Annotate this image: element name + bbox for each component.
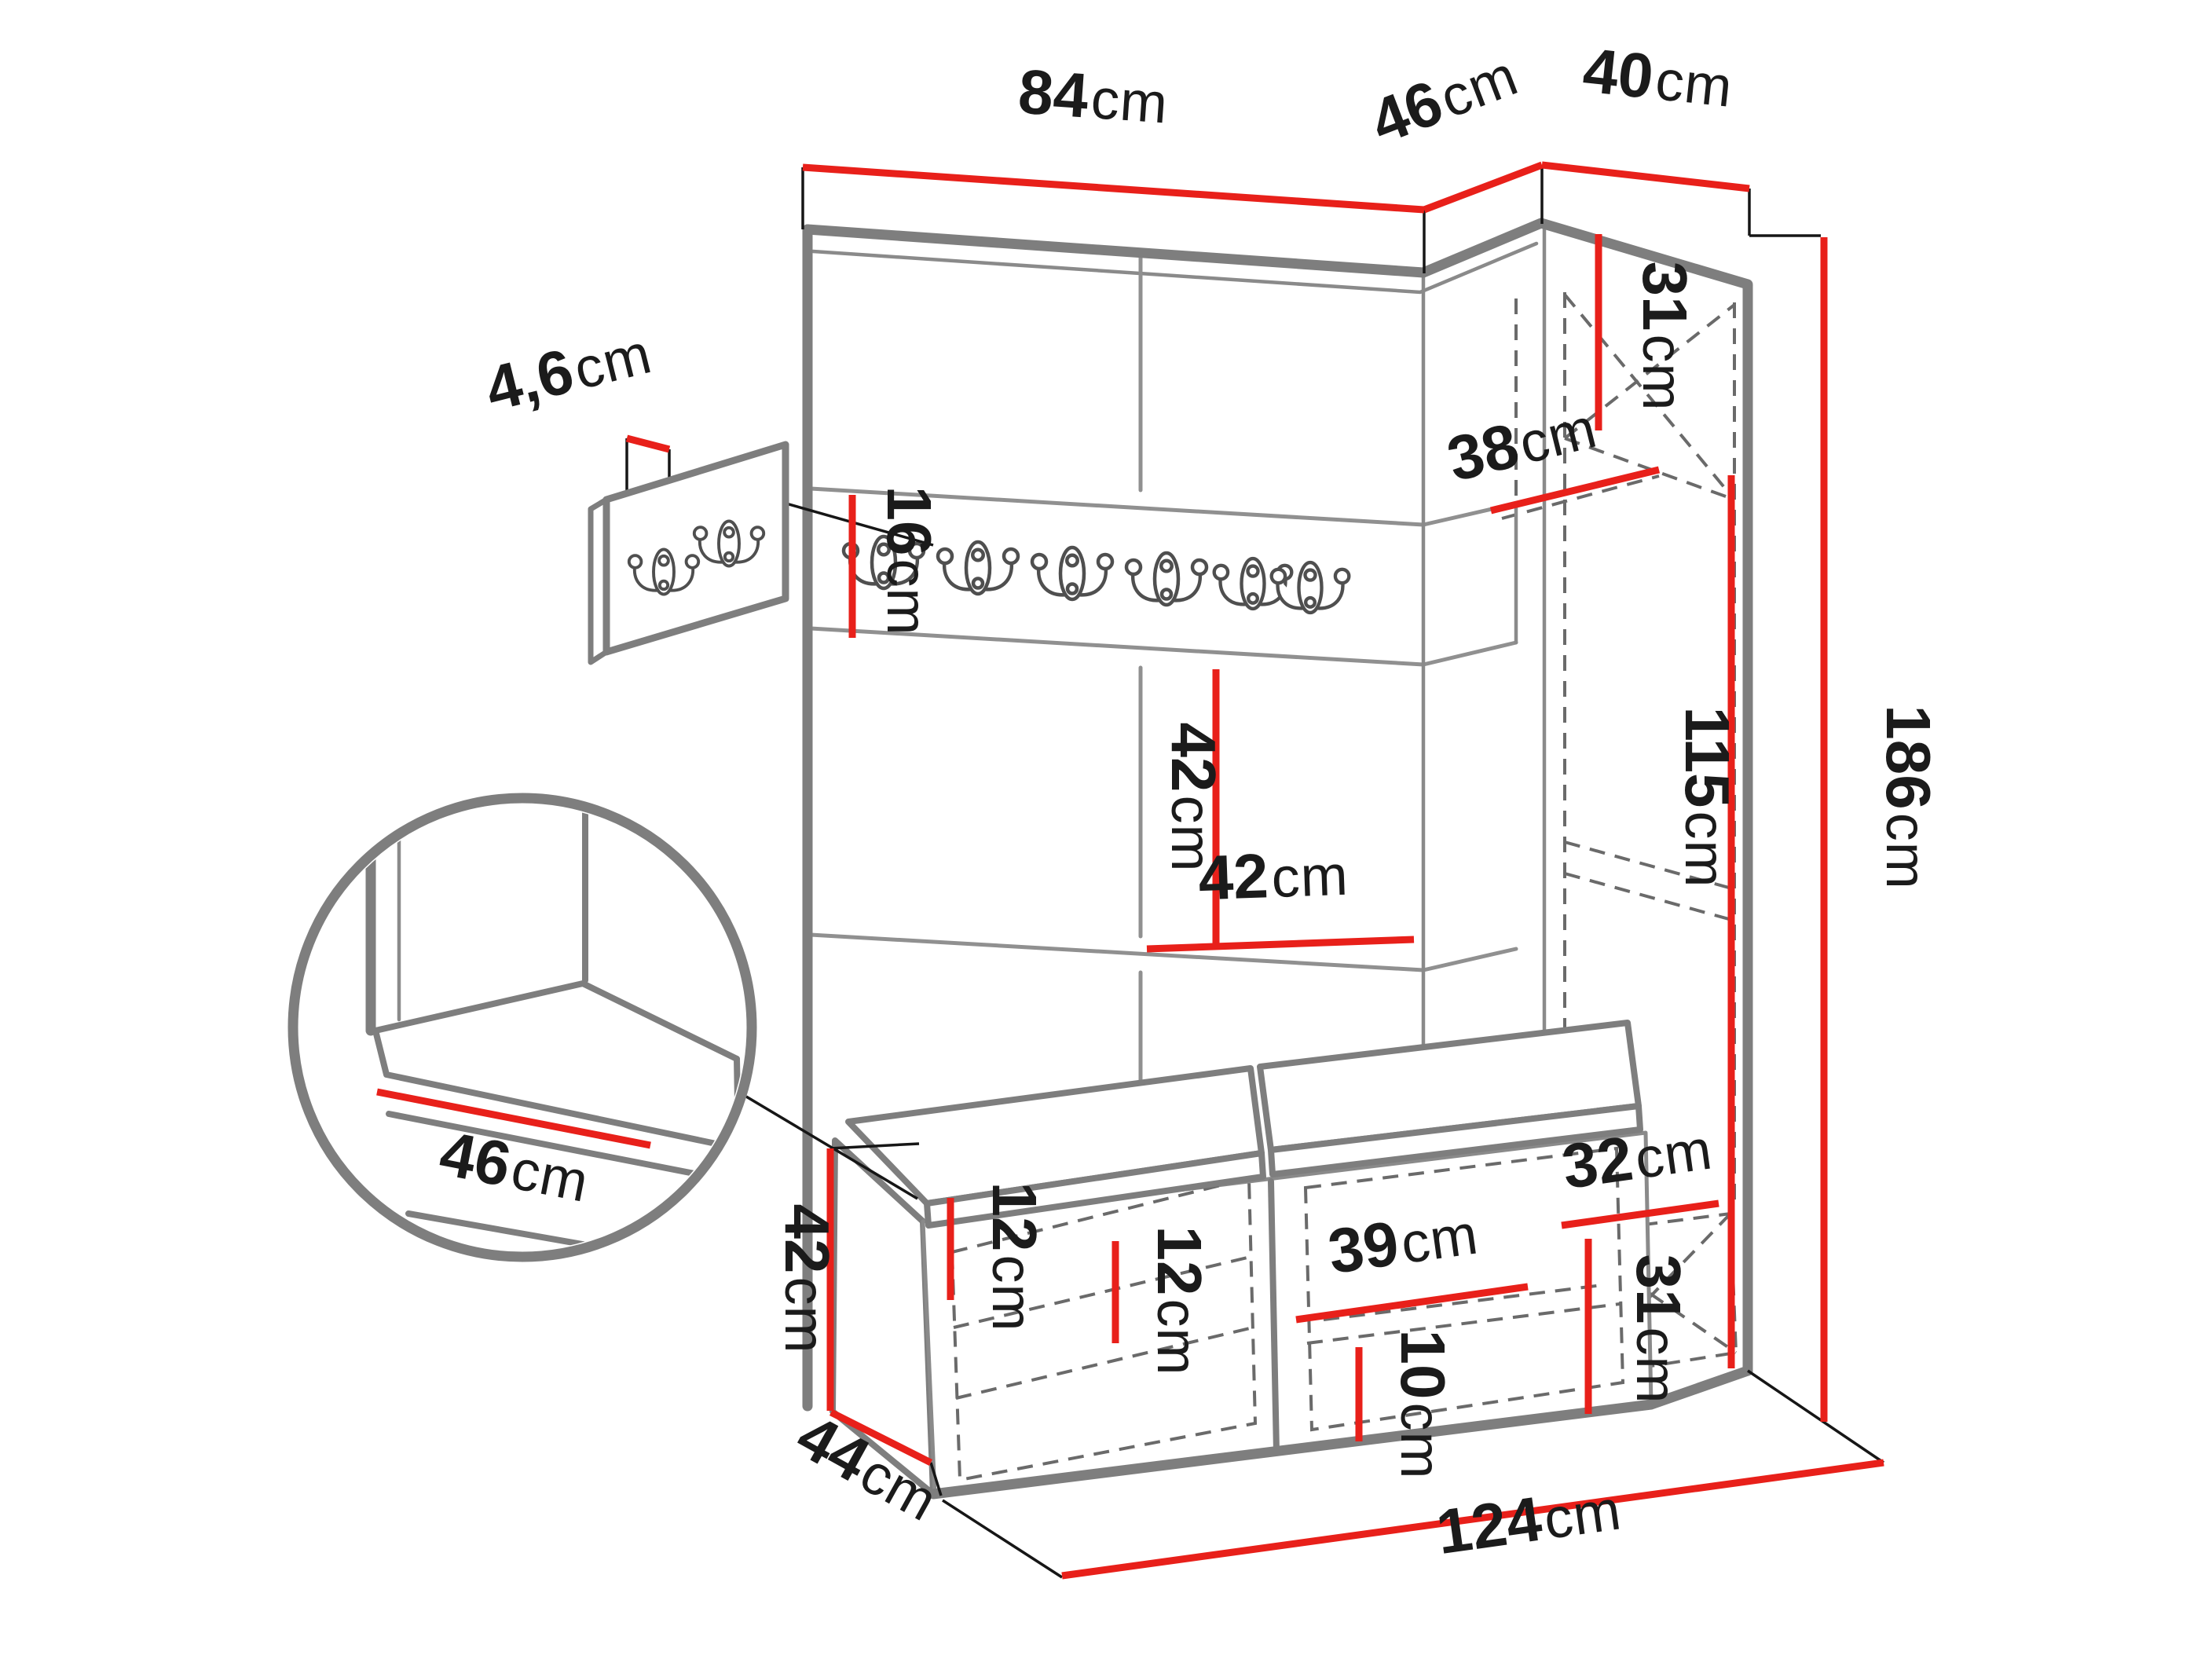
dim-line-84 [803, 167, 1424, 210]
dim-label-16: 16cm [874, 486, 944, 636]
dim-label-42-bench: 42cm [772, 1204, 842, 1354]
detail-circle: 46cm [293, 798, 752, 1266]
dim-label-4-6: 4,6cm [478, 316, 657, 424]
dim-label-31-bottom: 31cm [1624, 1254, 1694, 1404]
dim-label-46-top: 46cm [1361, 38, 1526, 158]
dim-label-42-horizontal: 42cm [1197, 838, 1350, 914]
dim-line-40 [1542, 165, 1749, 189]
page: { "page": { "background": "#ffffff" }, "… [0, 0, 2212, 1659]
wall-hook-panel [591, 445, 786, 662]
dim-label-10: 10cm [1388, 1330, 1458, 1480]
dim-label-40: 40cm [1580, 35, 1736, 119]
dim-label-12-lower: 12cm [1144, 1226, 1214, 1376]
dim-label-186: 186cm [1873, 705, 1943, 889]
dim-label-12-upper: 12cm [980, 1182, 1049, 1332]
dim-line-46 [1424, 165, 1542, 210]
dim-label-124: 124cm [1432, 1472, 1625, 1567]
dim-line-4-6 [627, 438, 669, 449]
dim-label-115: 115cm [1672, 706, 1742, 888]
dim-label-31-top: 31cm [1630, 262, 1700, 412]
dim-label-84: 84cm [1016, 57, 1171, 137]
furniture-dimension-diagram: 84cm 46cm 40cm 4,6cm 16cm 42cm 42cm 31cm… [0, 0, 2212, 1659]
